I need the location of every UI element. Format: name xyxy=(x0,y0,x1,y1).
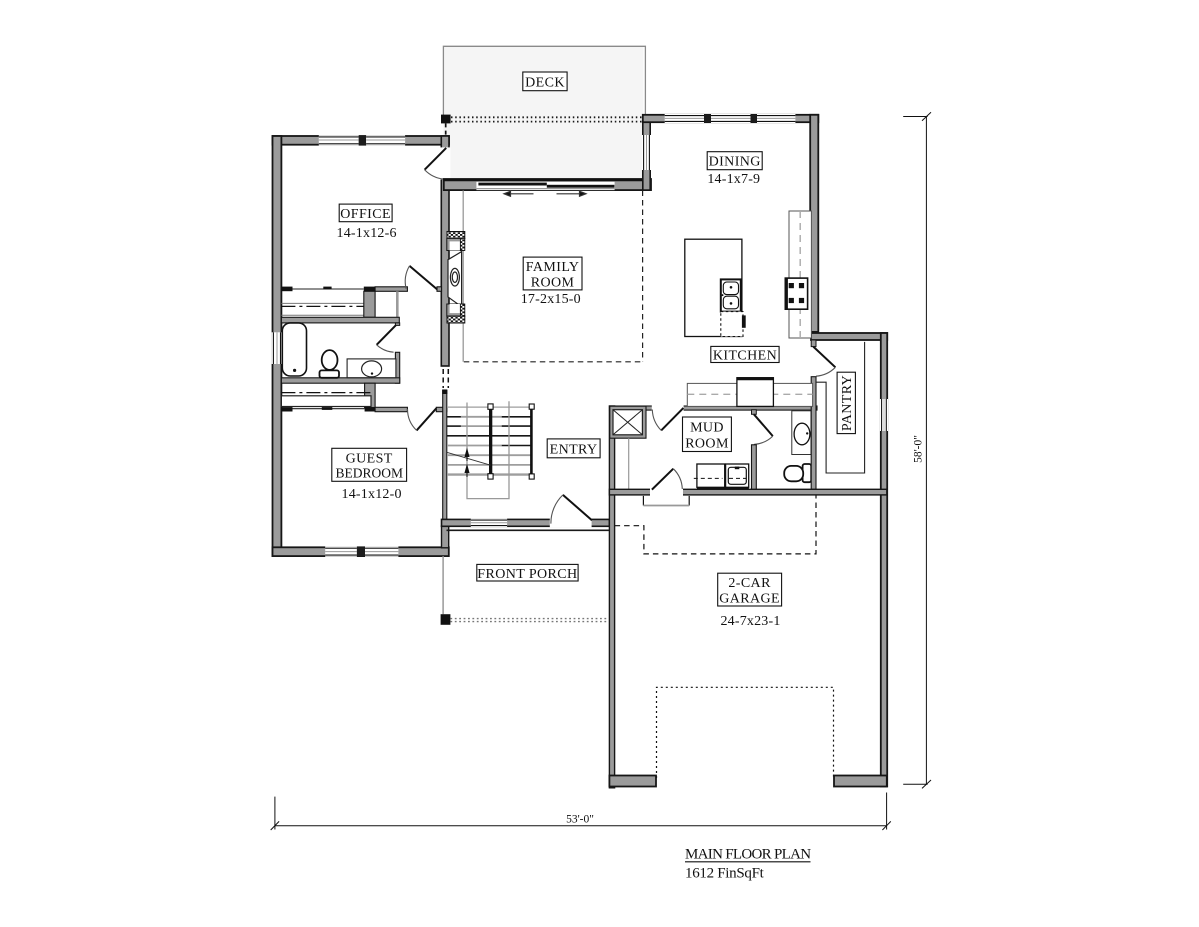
svg-text:GUEST: GUEST xyxy=(346,451,393,466)
svg-text:DECK: DECK xyxy=(525,75,565,90)
svg-text:17-2x15-0: 17-2x15-0 xyxy=(521,292,581,307)
svg-text:24-7x23-1: 24-7x23-1 xyxy=(720,614,780,629)
svg-text:2-CAR: 2-CAR xyxy=(728,576,771,591)
svg-text:14-1x7-9: 14-1x7-9 xyxy=(707,172,760,187)
svg-text:ENTRY: ENTRY xyxy=(550,442,598,457)
svg-text:PANTRY: PANTRY xyxy=(840,375,855,431)
svg-text:53'-0": 53'-0" xyxy=(566,814,594,826)
svg-text:OFFICE: OFFICE xyxy=(340,207,391,222)
svg-text:DINING: DINING xyxy=(709,155,761,170)
svg-text:KITCHEN: KITCHEN xyxy=(713,348,777,363)
svg-text:58'-0": 58'-0" xyxy=(913,435,925,463)
svg-text:FAMILY: FAMILY xyxy=(526,260,580,275)
svg-text:ROOM: ROOM xyxy=(685,436,729,451)
svg-text:BEDROOM: BEDROOM xyxy=(335,466,403,481)
svg-text:14-1x12-0: 14-1x12-0 xyxy=(342,487,402,502)
svg-text:FRONT PORCH: FRONT PORCH xyxy=(477,567,577,582)
svg-text:MAIN FLOOR PLAN: MAIN FLOOR PLAN xyxy=(685,847,811,863)
svg-text:MUD: MUD xyxy=(690,421,724,436)
svg-text:ROOM: ROOM xyxy=(531,275,575,290)
svg-text:GARAGE: GARAGE xyxy=(719,592,780,607)
svg-text:1612 FinSqFt: 1612 FinSqFt xyxy=(685,866,765,882)
svg-text:14-1x12-6: 14-1x12-6 xyxy=(337,226,397,241)
